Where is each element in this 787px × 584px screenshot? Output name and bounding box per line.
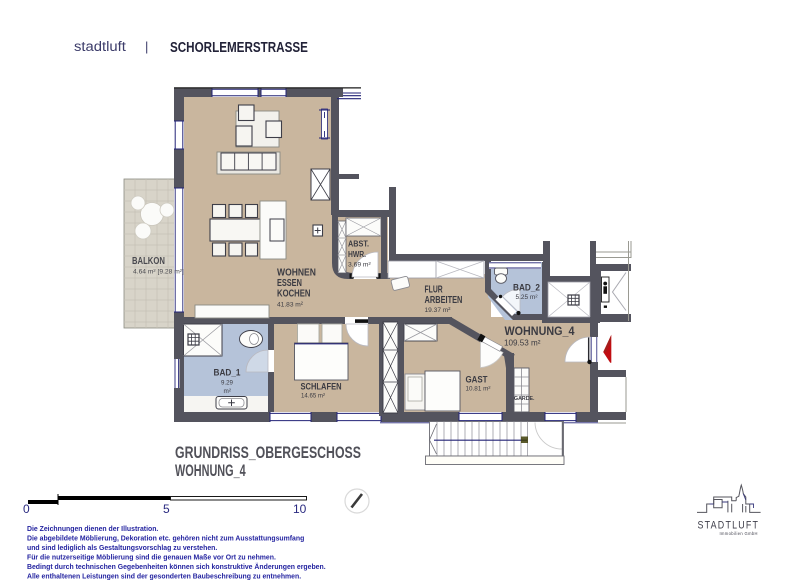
svg-text:GARDE.: GARDE. [514,396,535,402]
svg-text:14.65 m²: 14.65 m² [301,392,325,399]
svg-text:109.53 m²: 109.53 m² [504,339,541,348]
svg-text:Die Zeichnungen dienen der Ill: Die Zeichnungen dienen der Illustration. [27,526,158,533]
svg-text:5: 5 [163,502,170,516]
svg-text:WOHNUNG_4: WOHNUNG_4 [505,325,576,338]
svg-text:9.29: 9.29 [221,379,233,386]
svg-text:4.64 m² [9.28 m²]: 4.64 m² [9.28 m²] [133,269,184,276]
svg-text:m²: m² [224,388,231,395]
svg-text:stadtluft: stadtluft [74,39,126,55]
svg-text:SCHLAFEN: SCHLAFEN [301,381,342,392]
svg-text:HWR.: HWR. [348,249,366,259]
svg-text:Die abgebildete Möblierung, De: Die abgebildete Möblierung, Dekoration e… [27,536,304,543]
svg-text:ARBEITEN: ARBEITEN [425,294,463,306]
svg-text:Immobilien GmbH: Immobilien GmbH [720,531,758,536]
svg-text:|: | [145,39,148,54]
svg-text:Alle enthaltenen Leistungen si: Alle enthaltenen Leistungen sind der ges… [27,574,301,581]
svg-text:5.25 m²: 5.25 m² [516,294,539,301]
svg-text:und sind lediglich als Gestalt: und sind lediglich als Gestaltungsvorsch… [27,545,217,552]
svg-text:19.37 m²: 19.37 m² [425,307,452,314]
svg-text:0: 0 [23,502,30,516]
svg-text:ABST.: ABST. [348,239,369,249]
svg-text:Bedingt durch technischen Gege: Bedingt durch technischen Gegebenheiten … [27,563,326,571]
svg-text:10.81 m²: 10.81 m² [466,385,491,392]
svg-text:SCHORLEMERSTRASSE: SCHORLEMERSTRASSE [170,39,308,56]
svg-text:WOHNUNG_4: WOHNUNG_4 [175,461,246,480]
svg-text:BALKON: BALKON [132,255,165,266]
svg-text:41.83 m²: 41.83 m² [277,301,304,308]
svg-text:3.69 m²: 3.69 m² [348,262,371,269]
svg-text:Für die nutzerseitige Möblieru: Für die nutzerseitige Möblierung sind di… [27,555,276,562]
svg-text:BAD_1: BAD_1 [214,367,241,378]
svg-text:GAST: GAST [466,374,489,385]
svg-text:KOCHEN: KOCHEN [277,287,311,298]
svg-text:BAD_2: BAD_2 [513,282,540,293]
svg-text:10: 10 [293,502,307,516]
